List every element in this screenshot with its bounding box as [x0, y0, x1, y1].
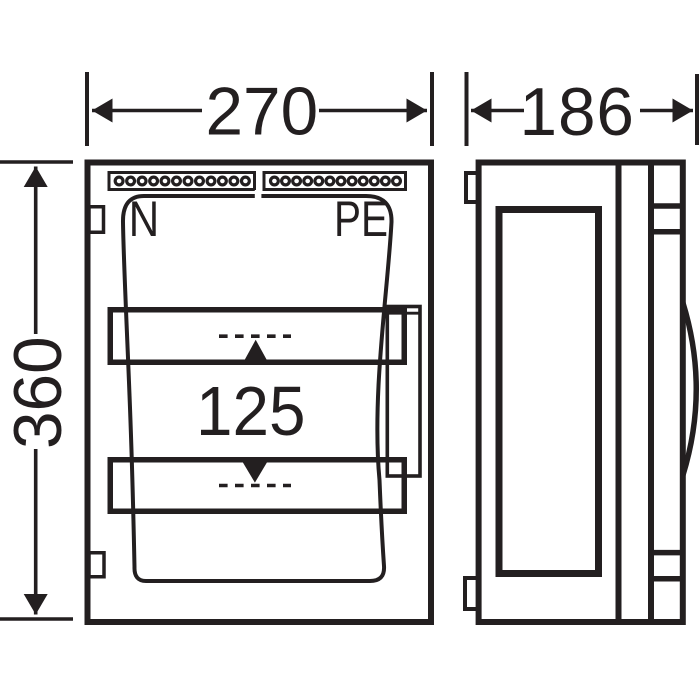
svg-text:360: 360: [1, 336, 76, 449]
svg-text:270: 270: [206, 75, 319, 150]
svg-text:N: N: [129, 191, 159, 247]
svg-text:186: 186: [520, 75, 635, 150]
svg-text:125: 125: [196, 372, 306, 450]
svg-text:PE: PE: [334, 191, 388, 247]
